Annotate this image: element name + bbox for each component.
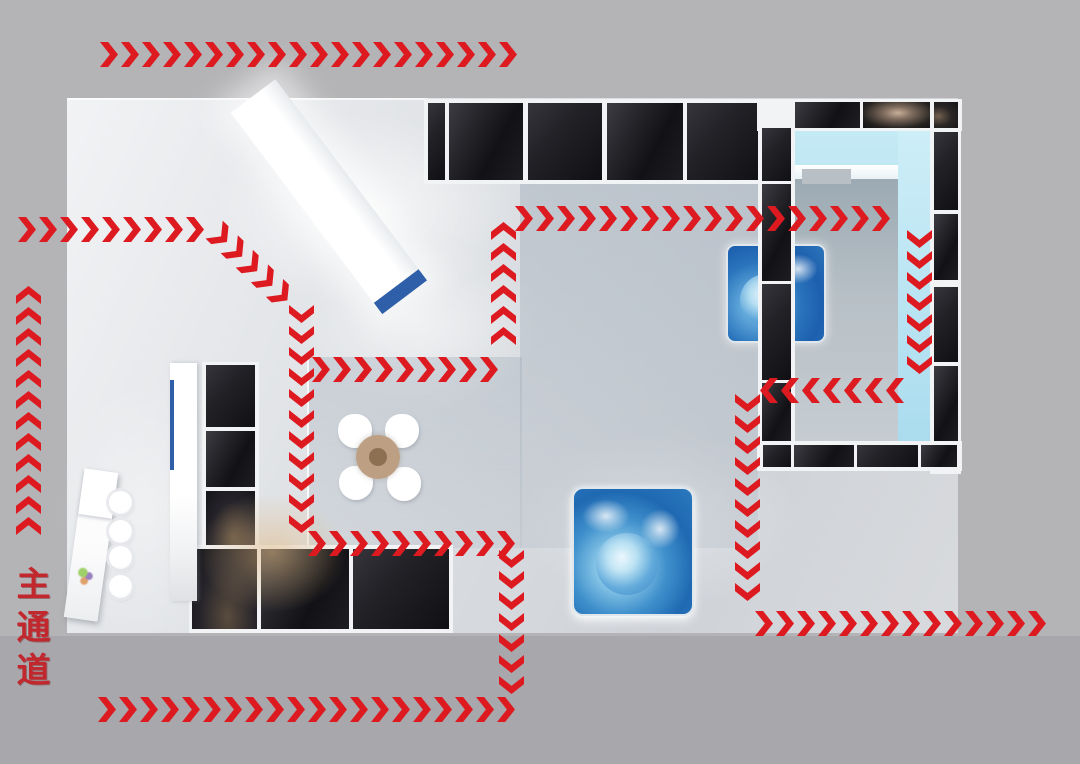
flow-chevron-icon	[16, 433, 41, 451]
flow-chevron-icon	[881, 611, 899, 636]
booth-floor-plan: 主通道	[0, 0, 1080, 764]
flow-chevron-icon	[851, 206, 869, 231]
flow-chevron-icon	[354, 357, 372, 382]
flow-chevron-icon	[557, 206, 575, 231]
flow-chevron-icon	[287, 697, 305, 722]
flow-chevron-icon	[434, 531, 452, 556]
wall-panel	[934, 132, 958, 210]
flow-chevron-icon	[289, 452, 314, 470]
flow-chevron-icon	[886, 378, 904, 403]
flow-chevron-icon	[289, 431, 314, 449]
flow-chevron-icon	[776, 611, 794, 636]
wall-panel	[762, 184, 791, 281]
flow-chevron-icon	[310, 42, 328, 67]
flow-chevron-icon	[797, 611, 815, 636]
wall-panel	[762, 284, 791, 380]
flow-chevron-icon	[352, 42, 370, 67]
flow-chevron-icon	[392, 697, 410, 722]
reception-back-wall	[170, 363, 197, 601]
flow-chevron-icon	[329, 531, 347, 556]
flow-chevron-icon	[907, 314, 932, 332]
room-left-wall	[758, 99, 795, 471]
flow-chevron-icon	[907, 272, 932, 290]
flow-chevron-icon	[907, 356, 932, 374]
flow-chevron-icon	[415, 42, 433, 67]
flow-lower-center	[308, 531, 515, 556]
flow-upper-right	[515, 206, 890, 231]
map-graphic	[582, 499, 630, 533]
flow-chevron-icon	[459, 357, 477, 382]
company-logo	[76, 567, 94, 587]
flow-chevron-icon	[81, 217, 99, 242]
flow-chevron-icon	[16, 496, 41, 514]
flow-chevron-icon	[16, 517, 41, 535]
flow-chevron-icon	[142, 42, 160, 67]
flow-chevron-icon	[923, 611, 941, 636]
flow-chevron-icon	[907, 251, 932, 269]
wall-panel	[934, 102, 958, 128]
flow-chevron-icon	[98, 697, 116, 722]
wall-panel	[762, 128, 791, 181]
flow-chevron-icon	[476, 531, 494, 556]
flow-chevron-icon	[499, 42, 517, 67]
flow-chevron-icon	[457, 42, 475, 67]
flow-chevron-icon	[725, 206, 743, 231]
flow-chevron-icon	[491, 222, 516, 240]
flow-chevron-icon	[641, 206, 659, 231]
flow-chevron-icon	[499, 613, 524, 631]
flow-chevron-icon	[308, 531, 326, 556]
flow-chevron-icon	[247, 42, 265, 67]
flow-chevron-icon	[436, 42, 454, 67]
flow-chevron-icon	[735, 415, 760, 433]
flow-chevron-icon	[289, 326, 314, 344]
flow-chevron-icon	[18, 217, 36, 242]
flow-chevron-icon	[683, 206, 701, 231]
wall-panel	[687, 103, 765, 180]
flow-lower-down	[499, 550, 524, 694]
flow-chevron-icon	[944, 611, 962, 636]
flow-room-right-down	[907, 230, 932, 374]
flow-chevron-icon	[491, 327, 516, 345]
flow-chevron-icon	[144, 217, 162, 242]
stool	[109, 575, 132, 598]
flow-chevron-icon	[413, 531, 431, 556]
flow-chevron-icon	[413, 697, 431, 722]
flow-chevron-icon	[735, 478, 760, 496]
flow-chevron-icon	[16, 391, 41, 409]
flow-chevron-icon	[499, 571, 524, 589]
flow-chevron-icon	[333, 357, 351, 382]
flow-chevron-icon	[373, 42, 391, 67]
wall-panel	[449, 103, 523, 180]
wall-panel	[857, 445, 918, 467]
glass-room-counter-step	[802, 169, 851, 184]
flow-chevron-icon	[735, 457, 760, 475]
flow-chevron-icon	[1007, 611, 1025, 636]
wall-panel	[353, 549, 449, 629]
flow-chevron-icon	[16, 286, 41, 304]
flow-chevron-icon	[476, 697, 494, 722]
flow-chevron-icon	[16, 328, 41, 346]
flow-chevron-icon	[599, 206, 617, 231]
flow-chevron-icon	[266, 697, 284, 722]
flow-chevron-icon	[184, 42, 202, 67]
flow-chevron-icon	[491, 243, 516, 261]
flow-chevron-icon	[1028, 611, 1046, 636]
flow-exit-right	[755, 611, 1046, 636]
flow-chevron-icon	[735, 562, 760, 580]
flow-chevron-icon	[438, 357, 456, 382]
flow-chevron-icon	[497, 697, 515, 722]
flow-chevron-icon	[781, 378, 799, 403]
flow-chevron-icon	[163, 42, 181, 67]
flow-chevron-icon	[161, 697, 179, 722]
flow-chevron-icon	[16, 370, 41, 388]
flow-chevron-icon	[499, 550, 524, 568]
flow-chevron-icon	[455, 531, 473, 556]
flow-chevron-icon	[455, 697, 473, 722]
flow-chevron-icon	[907, 230, 932, 248]
stool	[109, 491, 132, 514]
flow-chevron-icon	[704, 206, 722, 231]
wall-panel	[934, 366, 958, 445]
flow-chevron-icon	[620, 206, 638, 231]
flow-chevron-icon	[121, 42, 139, 67]
wall-panel	[794, 445, 854, 467]
flow-bottom-row	[98, 697, 515, 722]
wall-panel	[428, 103, 445, 180]
flow-chevron-icon	[417, 357, 435, 382]
flow-chevron-icon	[865, 378, 883, 403]
flow-chevron-icon	[802, 378, 820, 403]
flow-chevron-icon	[119, 697, 137, 722]
flow-chevron-icon	[872, 206, 890, 231]
flow-chevron-icon	[245, 697, 263, 722]
flow-chevron-icon	[102, 217, 120, 242]
flow-chevron-icon	[735, 583, 760, 601]
flow-chevron-icon	[165, 217, 183, 242]
flow-chevron-icon	[536, 206, 554, 231]
flow-chevron-icon	[308, 697, 326, 722]
floor-standing-display	[572, 487, 694, 616]
map-graphic	[640, 509, 680, 549]
flow-chevron-icon	[289, 389, 314, 407]
flow-chevron-icon	[755, 611, 773, 636]
flow-chevron-icon	[844, 378, 862, 403]
flow-chevron-icon	[375, 357, 393, 382]
flow-chevron-icon	[289, 473, 314, 491]
round-table	[356, 435, 400, 479]
blue-accent-stripe	[170, 380, 174, 470]
flow-chevron-icon	[16, 454, 41, 472]
main-aisle-label: 主通道	[6, 566, 55, 695]
flow-chevron-icon	[205, 42, 223, 67]
flow-chevron-icon	[499, 634, 524, 652]
flow-chevron-icon	[16, 412, 41, 430]
flow-chevron-icon	[100, 42, 118, 67]
flow-center-up	[491, 222, 516, 345]
top-wall	[424, 99, 769, 184]
flow-chevron-icon	[289, 42, 307, 67]
room-right-wall	[930, 99, 961, 474]
flow-chevron-icon	[289, 494, 314, 512]
wall-panel	[607, 103, 683, 180]
flow-chevron-icon	[289, 305, 314, 323]
flow-chevron-icon	[735, 520, 760, 538]
flow-chevron-icon	[478, 42, 496, 67]
wall-panel	[934, 287, 958, 362]
flow-chevron-icon	[578, 206, 596, 231]
flow-chevron-icon	[491, 264, 516, 282]
flow-chevron-icon	[860, 611, 878, 636]
flow-chevron-icon	[491, 306, 516, 324]
flow-chevron-icon	[39, 217, 57, 242]
flow-chevron-icon	[767, 206, 785, 231]
flow-chevron-icon	[823, 378, 841, 403]
flow-chevron-icon	[735, 394, 760, 412]
flow-chevron-icon	[329, 697, 347, 722]
shelf-cell	[206, 431, 255, 487]
wall-panel	[921, 445, 957, 467]
flow-chevron-icon	[907, 293, 932, 311]
flow-chevron-icon	[289, 347, 314, 365]
flow-chevron-icon	[371, 531, 389, 556]
flow-chevron-icon	[735, 436, 760, 454]
flow-chevron-icon	[268, 42, 286, 67]
wall-panel-lit	[863, 102, 930, 128]
flow-chevron-icon	[350, 531, 368, 556]
flow-chevron-icon	[499, 676, 524, 694]
flow-chevron-icon	[331, 42, 349, 67]
flow-chevron-icon	[746, 206, 764, 231]
flow-chevron-icon	[312, 357, 330, 382]
flow-chevron-icon	[16, 349, 41, 367]
flow-entry-row	[18, 217, 204, 242]
flow-chevron-icon	[394, 42, 412, 67]
flow-chevron-icon	[515, 206, 533, 231]
flow-chevron-icon	[182, 697, 200, 722]
room-bottom-wall	[757, 441, 962, 471]
flow-chevron-icon	[16, 475, 41, 493]
flow-center-right	[312, 357, 498, 382]
flow-room-return	[760, 378, 904, 403]
flow-chevron-icon	[499, 655, 524, 673]
flow-chevron-icon	[140, 697, 158, 722]
flow-chevron-icon	[371, 697, 389, 722]
flow-chevron-icon	[907, 335, 932, 353]
flow-chevron-icon	[788, 206, 806, 231]
flow-chevron-icon	[818, 611, 836, 636]
flow-chevron-icon	[224, 697, 242, 722]
flow-center-down	[289, 305, 314, 533]
stool	[109, 546, 132, 569]
flow-chevron-icon	[986, 611, 1004, 636]
flow-chevron-icon	[735, 499, 760, 517]
wall-panel	[934, 214, 958, 280]
flow-main-aisle-up	[16, 286, 41, 535]
flow-chevron-icon	[809, 206, 827, 231]
flow-chevron-icon	[289, 410, 314, 428]
flow-chevron-icon	[226, 42, 244, 67]
flow-chevron-icon	[902, 611, 920, 636]
flow-chevron-icon	[123, 217, 141, 242]
flow-chevron-icon	[491, 285, 516, 303]
flow-top-row	[100, 42, 517, 67]
flow-chevron-icon	[760, 378, 778, 403]
flow-chevron-icon	[965, 611, 983, 636]
flow-chevron-icon	[499, 592, 524, 610]
demo-area-carpet	[307, 357, 522, 548]
wall-panel	[763, 445, 791, 467]
flow-chevron-icon	[830, 206, 848, 231]
flow-chevron-icon	[662, 206, 680, 231]
flow-chevron-icon	[735, 541, 760, 559]
flow-chevron-icon	[839, 611, 857, 636]
flow-chevron-icon	[186, 217, 204, 242]
flow-chevron-icon	[396, 357, 414, 382]
flow-room-left-down	[735, 394, 760, 601]
flow-chevron-icon	[434, 697, 452, 722]
flow-chevron-icon	[16, 307, 41, 325]
flow-chevron-icon	[350, 697, 368, 722]
shelf-cell	[206, 365, 255, 427]
flow-chevron-icon	[60, 217, 78, 242]
flow-chevron-icon	[289, 368, 314, 386]
stool	[109, 520, 132, 543]
flow-chevron-icon	[203, 697, 221, 722]
wall-panel	[794, 102, 860, 128]
flow-chevron-icon	[480, 357, 498, 382]
flow-chevron-icon	[392, 531, 410, 556]
wall-panel	[528, 103, 602, 180]
